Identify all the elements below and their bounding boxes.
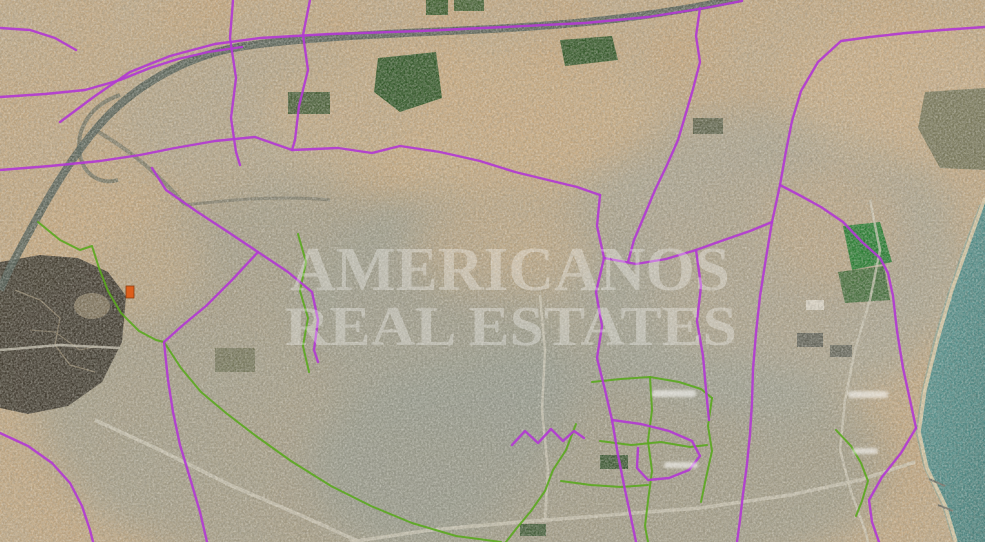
satellite-map[interactable]: AMERICANOS REAL ESTATES [0, 0, 985, 542]
watermark: AMERICANOS REAL ESTATES [285, 236, 737, 358]
plot-marker [126, 286, 134, 298]
watermark-line2: REAL ESTATES [285, 296, 737, 358]
satellite-map-image: AMERICANOS REAL ESTATES [0, 0, 985, 542]
watermark-line1: AMERICANOS [290, 236, 730, 304]
